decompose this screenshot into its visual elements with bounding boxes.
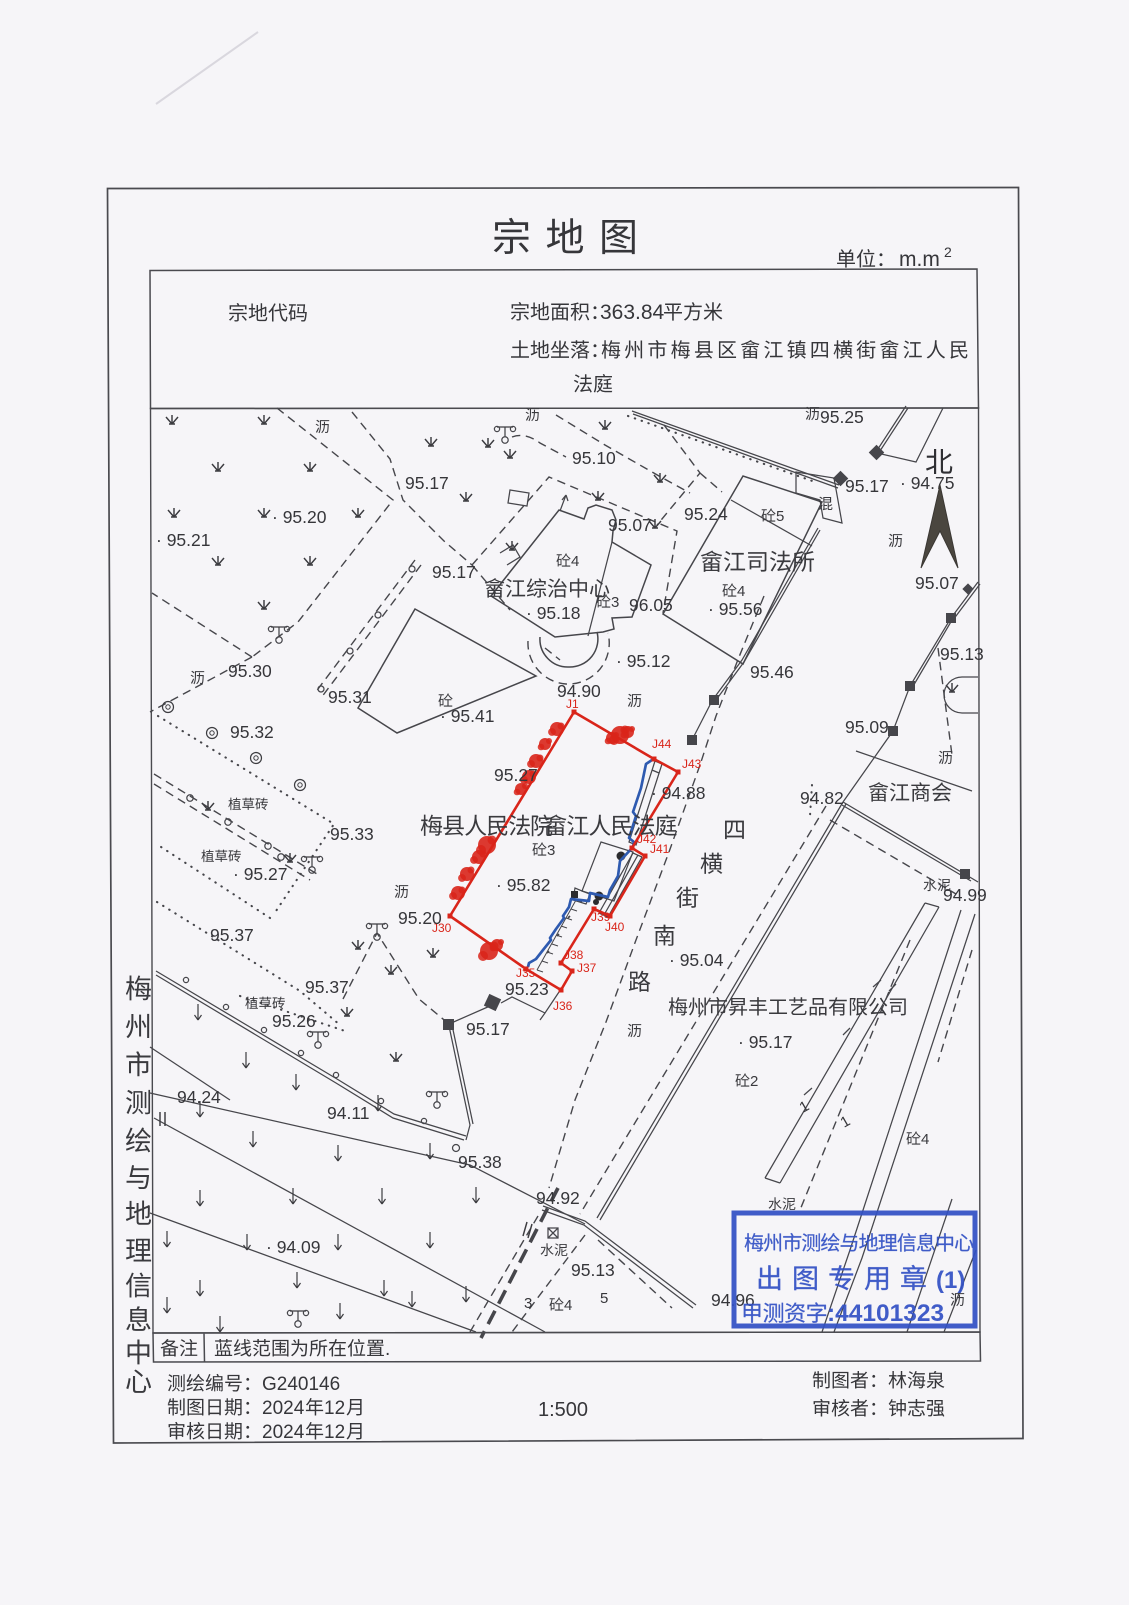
svg-text:95.20: 95.20 — [398, 908, 442, 928]
svg-text:12: 12 — [324, 1398, 345, 1419]
svg-text:· 95.56: · 95.56 — [708, 599, 762, 619]
svg-text:· 94.09: · 94.09 — [266, 1237, 320, 1257]
svg-text:J44: J44 — [652, 737, 672, 751]
svg-text:5: 5 — [776, 508, 784, 525]
svg-text::44101323: :44101323 — [827, 1300, 944, 1327]
svg-text:3: 3 — [611, 594, 619, 611]
svg-text:95.33: 95.33 — [330, 824, 374, 844]
svg-text:94.92: 94.92 — [536, 1188, 580, 1208]
svg-text:94.11: 94.11 — [327, 1103, 370, 1123]
svg-text:2024: 2024 — [262, 1398, 305, 1419]
svg-text:95.24: 95.24 — [684, 504, 728, 524]
svg-text:· 94.88: · 94.88 — [651, 783, 705, 803]
svg-text:95.17: 95.17 — [405, 473, 449, 493]
svg-text:· 95.17: · 95.17 — [738, 1032, 792, 1052]
svg-text:95.17: 95.17 — [466, 1019, 510, 1039]
svg-text:J43: J43 — [682, 757, 702, 771]
svg-text:95.31: 95.31 — [328, 687, 372, 707]
svg-text:1:500: 1:500 — [538, 1399, 588, 1421]
svg-text:94.90: 94.90 — [557, 681, 601, 701]
svg-text:95.38: 95.38 — [458, 1152, 502, 1172]
svg-text:· 95.18: · 95.18 — [526, 603, 580, 623]
svg-text:5: 5 — [600, 1290, 608, 1307]
svg-text:· 95.21: · 95.21 — [156, 530, 210, 550]
svg-text:95.13: 95.13 — [940, 644, 984, 664]
svg-text:3: 3 — [547, 842, 555, 859]
svg-text:95.23: 95.23 — [505, 979, 549, 999]
svg-text:J41: J41 — [650, 842, 670, 856]
svg-text:.: . — [385, 1339, 390, 1360]
svg-text:94.82: 94.82 — [800, 788, 844, 808]
svg-text:(1): (1) — [936, 1267, 965, 1294]
svg-text:95.32: 95.32 — [230, 722, 274, 742]
svg-text:363.84: 363.84 — [600, 301, 665, 324]
svg-text:J36: J36 — [553, 999, 573, 1013]
svg-text:G240146: G240146 — [262, 1374, 340, 1395]
svg-text:95.37: 95.37 — [305, 977, 349, 997]
svg-text:4: 4 — [564, 1297, 572, 1314]
svg-text:· 95.41: · 95.41 — [440, 706, 494, 726]
svg-text:· 95.82: · 95.82 — [496, 875, 550, 895]
svg-text:· 95.20: · 95.20 — [272, 507, 327, 527]
svg-text:3: 3 — [524, 1295, 532, 1312]
svg-text:· 94.75: · 94.75 — [900, 473, 954, 493]
svg-text:95.37: 95.37 — [210, 925, 254, 945]
svg-text:95.07: 95.07 — [608, 515, 652, 535]
svg-text:2: 2 — [750, 1073, 758, 1090]
svg-text:· 95.04: · 95.04 — [669, 950, 724, 970]
svg-text:94.24: 94.24 — [177, 1087, 221, 1107]
svg-text:95.26: 95.26 — [272, 1011, 316, 1031]
svg-text:2024: 2024 — [262, 1422, 305, 1443]
svg-text:2: 2 — [944, 244, 952, 260]
svg-text:J40: J40 — [605, 920, 625, 934]
svg-text:95.10: 95.10 — [572, 448, 616, 468]
svg-text:4: 4 — [921, 1131, 929, 1148]
svg-text:95.46: 95.46 — [750, 662, 794, 682]
svg-text:95.30: 95.30 — [228, 661, 272, 681]
svg-text:95.17: 95.17 — [845, 476, 889, 496]
svg-text:· 95.27: · 95.27 — [233, 864, 287, 884]
svg-text:· 95.12: · 95.12 — [616, 651, 670, 671]
svg-text:4: 4 — [571, 553, 579, 570]
svg-text:m.m: m.m — [899, 248, 940, 271]
svg-text:J38: J38 — [564, 948, 584, 962]
svg-text:95.07: 95.07 — [915, 573, 959, 593]
svg-text:96.05: 96.05 — [629, 595, 673, 615]
svg-text:J37: J37 — [577, 961, 597, 975]
svg-text:J35: J35 — [516, 966, 536, 980]
svg-text:95.13: 95.13 — [571, 1260, 615, 1280]
svg-text:12: 12 — [324, 1422, 345, 1443]
svg-text:4: 4 — [737, 583, 745, 600]
svg-text:95.09: 95.09 — [845, 717, 889, 737]
svg-text:95.25: 95.25 — [820, 407, 864, 427]
svg-text:95.27: 95.27 — [494, 765, 538, 785]
svg-text:95.17: 95.17 — [432, 562, 476, 582]
